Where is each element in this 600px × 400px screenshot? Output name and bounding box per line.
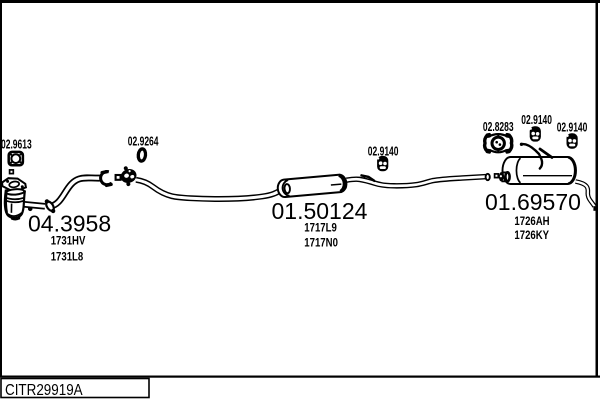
svg-text:02.9140: 02.9140 <box>521 113 552 127</box>
svg-text:CITR29919A: CITR29919A <box>5 382 83 399</box>
svg-text:1717L9: 1717L9 <box>304 221 337 234</box>
svg-text:1717N0: 1717N0 <box>304 237 338 250</box>
svg-text:1726KY: 1726KY <box>514 229 549 242</box>
svg-text:02.8283: 02.8283 <box>483 120 514 134</box>
svg-text:1726AH: 1726AH <box>514 215 549 228</box>
svg-text:04.3958: 04.3958 <box>28 211 111 237</box>
svg-text:02.9613: 02.9613 <box>1 138 32 152</box>
svg-text:02.9264: 02.9264 <box>128 135 159 149</box>
svg-text:01.69570: 01.69570 <box>485 189 581 215</box>
svg-text:01.50124: 01.50124 <box>272 198 368 224</box>
svg-text:02.9140: 02.9140 <box>557 121 588 135</box>
svg-text:1731HV: 1731HV <box>51 234 86 247</box>
svg-text:1731L8: 1731L8 <box>51 251 84 264</box>
